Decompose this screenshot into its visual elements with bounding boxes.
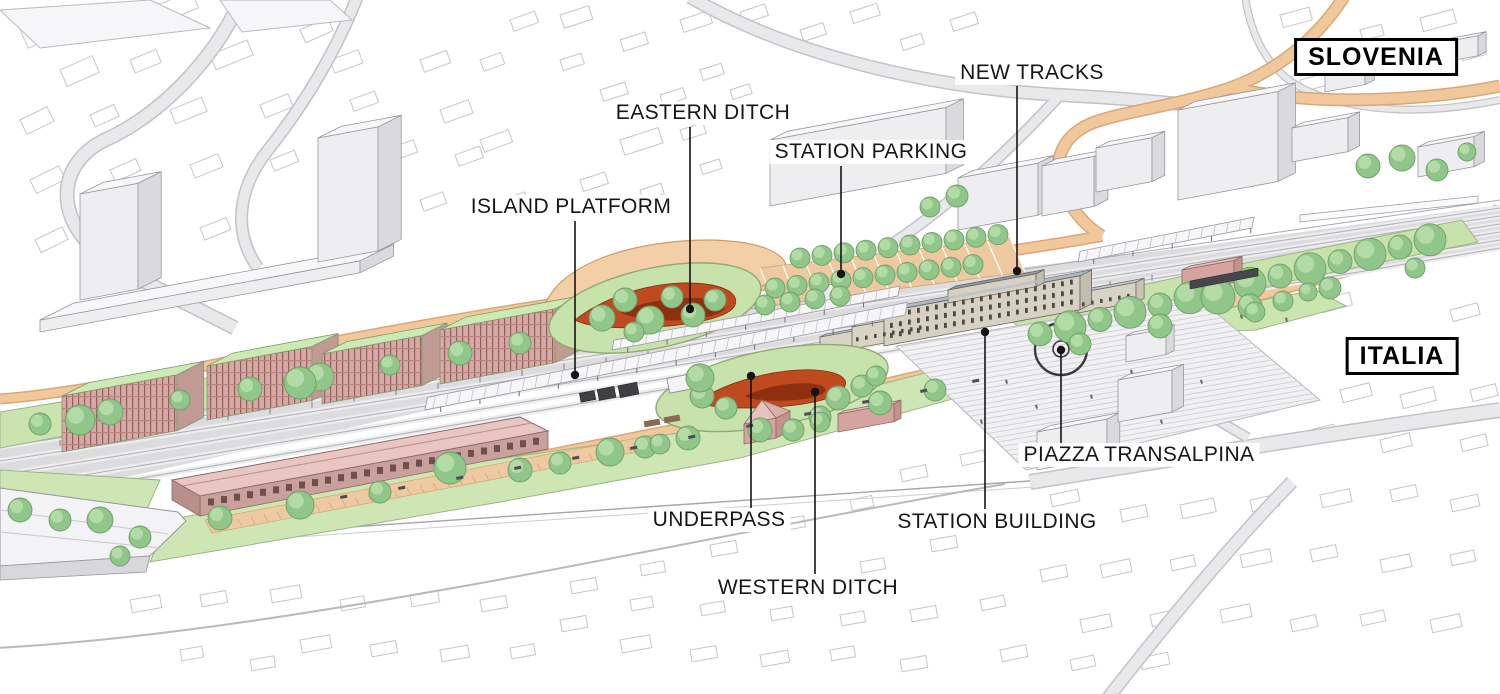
label-western-ditch: WESTERN DITCH [713, 576, 903, 600]
label-eastern-ditch: EASTERN DITCH [611, 101, 795, 125]
axonometric-site-diagram: ISLAND PLATFORM EASTERN DITCH STATION PA… [0, 0, 1500, 694]
label-italia: ITALIA [1346, 337, 1459, 375]
label-slovenia: SLOVENIA [1294, 38, 1458, 76]
label-new-tracks: NEW TRACKS [955, 61, 1109, 85]
label-island-platform: ISLAND PLATFORM [466, 195, 676, 219]
label-station-parking: STATION PARKING [770, 140, 973, 164]
label-underpass: UNDERPASS [648, 508, 791, 532]
label-piazza-transalpina: PIAZZA TRANSALPINA [1019, 443, 1260, 467]
label-station-building: STATION BUILDING [892, 510, 1101, 534]
